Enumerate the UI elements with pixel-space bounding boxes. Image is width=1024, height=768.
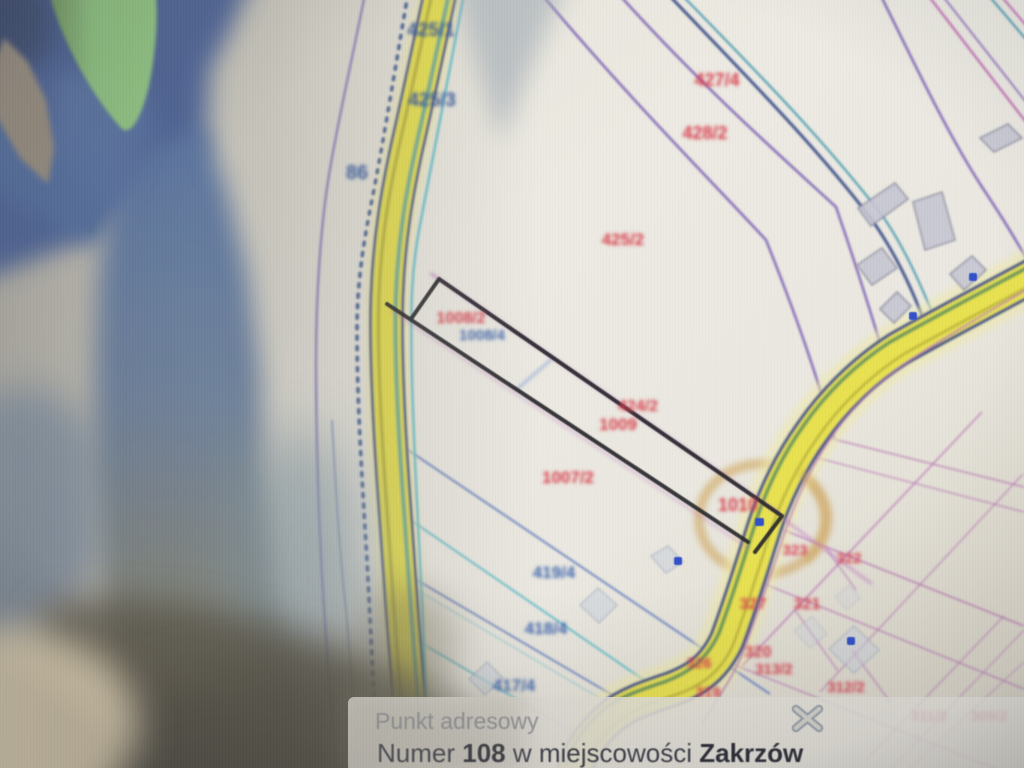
svg-text:326: 326	[686, 655, 711, 672]
svg-text:424/2: 424/2	[618, 398, 658, 415]
svg-text:322: 322	[836, 550, 861, 567]
svg-text:1009: 1009	[599, 415, 637, 434]
svg-text:1007/2: 1007/2	[542, 468, 594, 487]
svg-text:321: 321	[794, 596, 821, 613]
svg-text:323: 323	[782, 542, 807, 559]
svg-text:427/4: 427/4	[694, 70, 739, 90]
svg-text:428/2: 428/2	[682, 123, 727, 143]
svg-text:425/2: 425/2	[602, 230, 645, 249]
svg-text:313/2: 313/2	[755, 661, 793, 678]
svg-text:312/2: 312/2	[827, 679, 865, 696]
svg-text:327: 327	[740, 596, 767, 613]
svg-text:1010: 1010	[718, 495, 758, 515]
svg-text:320: 320	[745, 644, 772, 661]
